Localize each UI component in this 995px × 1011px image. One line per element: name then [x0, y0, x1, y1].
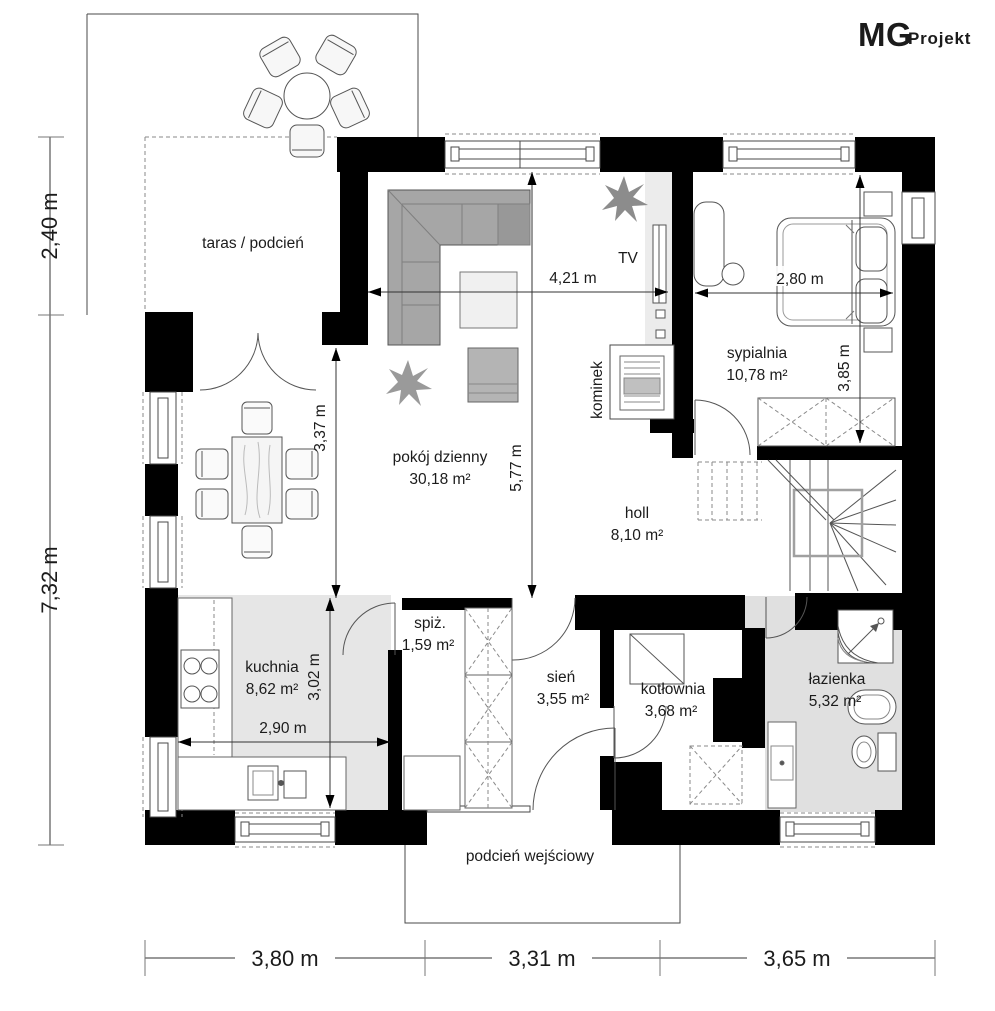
- room-area-hall: 8,10 m²: [611, 527, 664, 544]
- room-area-living: 30,18 m²: [409, 471, 470, 488]
- window-dining-lower: [143, 516, 182, 588]
- dim-bottom-left-label: 3,80 m: [251, 946, 318, 971]
- room-area-vestibule: 3,55 m²: [537, 691, 590, 708]
- room-area-kitchen: 8,62 m²: [246, 681, 299, 698]
- dim-bedroom-height-label: 3,85 m: [836, 344, 853, 391]
- washer: [768, 722, 796, 808]
- boiler-room-cabinet: [690, 746, 742, 804]
- window-dining-upper: [143, 392, 182, 464]
- room-area-boiler: 3,68 m²: [645, 703, 698, 720]
- room-label-boiler: kotłownia: [641, 681, 706, 698]
- dim-kitchen-width-label: 2,90 m: [259, 720, 306, 737]
- fireplace: [610, 345, 674, 419]
- fixture-label-fireplace: kominek: [589, 361, 606, 419]
- dining-set: [196, 402, 318, 558]
- dimension-left-column: 2,40 m 7,32 m: [37, 137, 64, 845]
- window-living: [445, 134, 600, 174]
- room-label-taras: taras / podcień: [202, 235, 304, 252]
- dimension-bottom-row: 3,80 m 3,31 m 3,65 m: [145, 940, 935, 976]
- cooktop: [181, 650, 219, 708]
- stairs-upper-flight-dashed: [698, 462, 762, 520]
- dim-living-width-label: 4,21 m: [549, 270, 596, 287]
- pantry-cabinet: [404, 756, 460, 810]
- staircase: [698, 460, 896, 591]
- plant-icon: [602, 176, 648, 222]
- logo-projekt: Projekt: [908, 29, 971, 48]
- room-label-vestibule: sień: [547, 669, 575, 686]
- boiler: [630, 634, 684, 684]
- shower: [838, 610, 893, 663]
- room-area-bath: 5,32 m²: [809, 693, 862, 710]
- roof-overhang-dashed: [145, 137, 337, 312]
- room-label-hall: holl: [625, 505, 649, 522]
- room-label-pantry: spiż.: [414, 615, 446, 632]
- dim-bottom-right-label: 3,65 m: [763, 946, 830, 971]
- french-door-terrace: [200, 333, 316, 390]
- nightstand: [864, 192, 892, 216]
- dim-bottom-middle-label: 3,31 m: [508, 946, 575, 971]
- bedroom-armchair: [694, 202, 744, 286]
- room-label-living: pokój dzienny: [393, 449, 488, 466]
- dim-bedroom-width-label: 2,80 m: [776, 271, 823, 288]
- pouf-dark: [468, 348, 518, 402]
- door-bedroom: [695, 400, 750, 455]
- dim-living-left-label: 3,37 m: [312, 404, 329, 451]
- plant-icon: [386, 360, 432, 406]
- dim-left-upper-label: 2,40 m: [37, 192, 62, 259]
- nightstand: [864, 328, 892, 352]
- fixture-label-tv: TV: [618, 250, 638, 267]
- floor-plan-canvas: 4,21 m 2,80 m 3,37 m 5,77 m 3,85 m 3,02 …: [0, 0, 995, 1011]
- room-area-bedroom: 10,78 m²: [726, 367, 787, 384]
- dim-living-right-label: 5,77 m: [508, 444, 525, 491]
- mg-projekt-logo: MG Projekt: [858, 16, 971, 53]
- pouf-light: [460, 272, 517, 328]
- room-label-kitchen: kuchnia: [245, 659, 299, 676]
- bedroom-wardrobe: [758, 398, 895, 446]
- window-kitchen-side: [143, 737, 182, 817]
- window-bedroom: [723, 134, 855, 174]
- window-right-wall: [902, 192, 935, 244]
- logo-mg: MG: [858, 16, 912, 53]
- room-area-pantry: 1,59 m²: [402, 637, 455, 654]
- window-bath-bottom: [780, 813, 875, 847]
- door-vestibule: [512, 598, 575, 660]
- floor-plan-page: 4,21 m 2,80 m 3,37 m 5,77 m 3,85 m 3,02 …: [0, 0, 995, 1011]
- kitchen-sink: [248, 766, 306, 800]
- dim-left-lower-label: 7,32 m: [37, 546, 62, 613]
- room-label-bath: łazienka: [809, 671, 866, 688]
- window-kitchen-bottom: [235, 813, 335, 847]
- room-label-bedroom: sypialnia: [727, 345, 788, 362]
- room-label-porch: podcień wejściowy: [466, 848, 595, 865]
- hall-closet: [465, 608, 512, 808]
- dim-kitchen-height-label: 3,02 m: [306, 653, 323, 700]
